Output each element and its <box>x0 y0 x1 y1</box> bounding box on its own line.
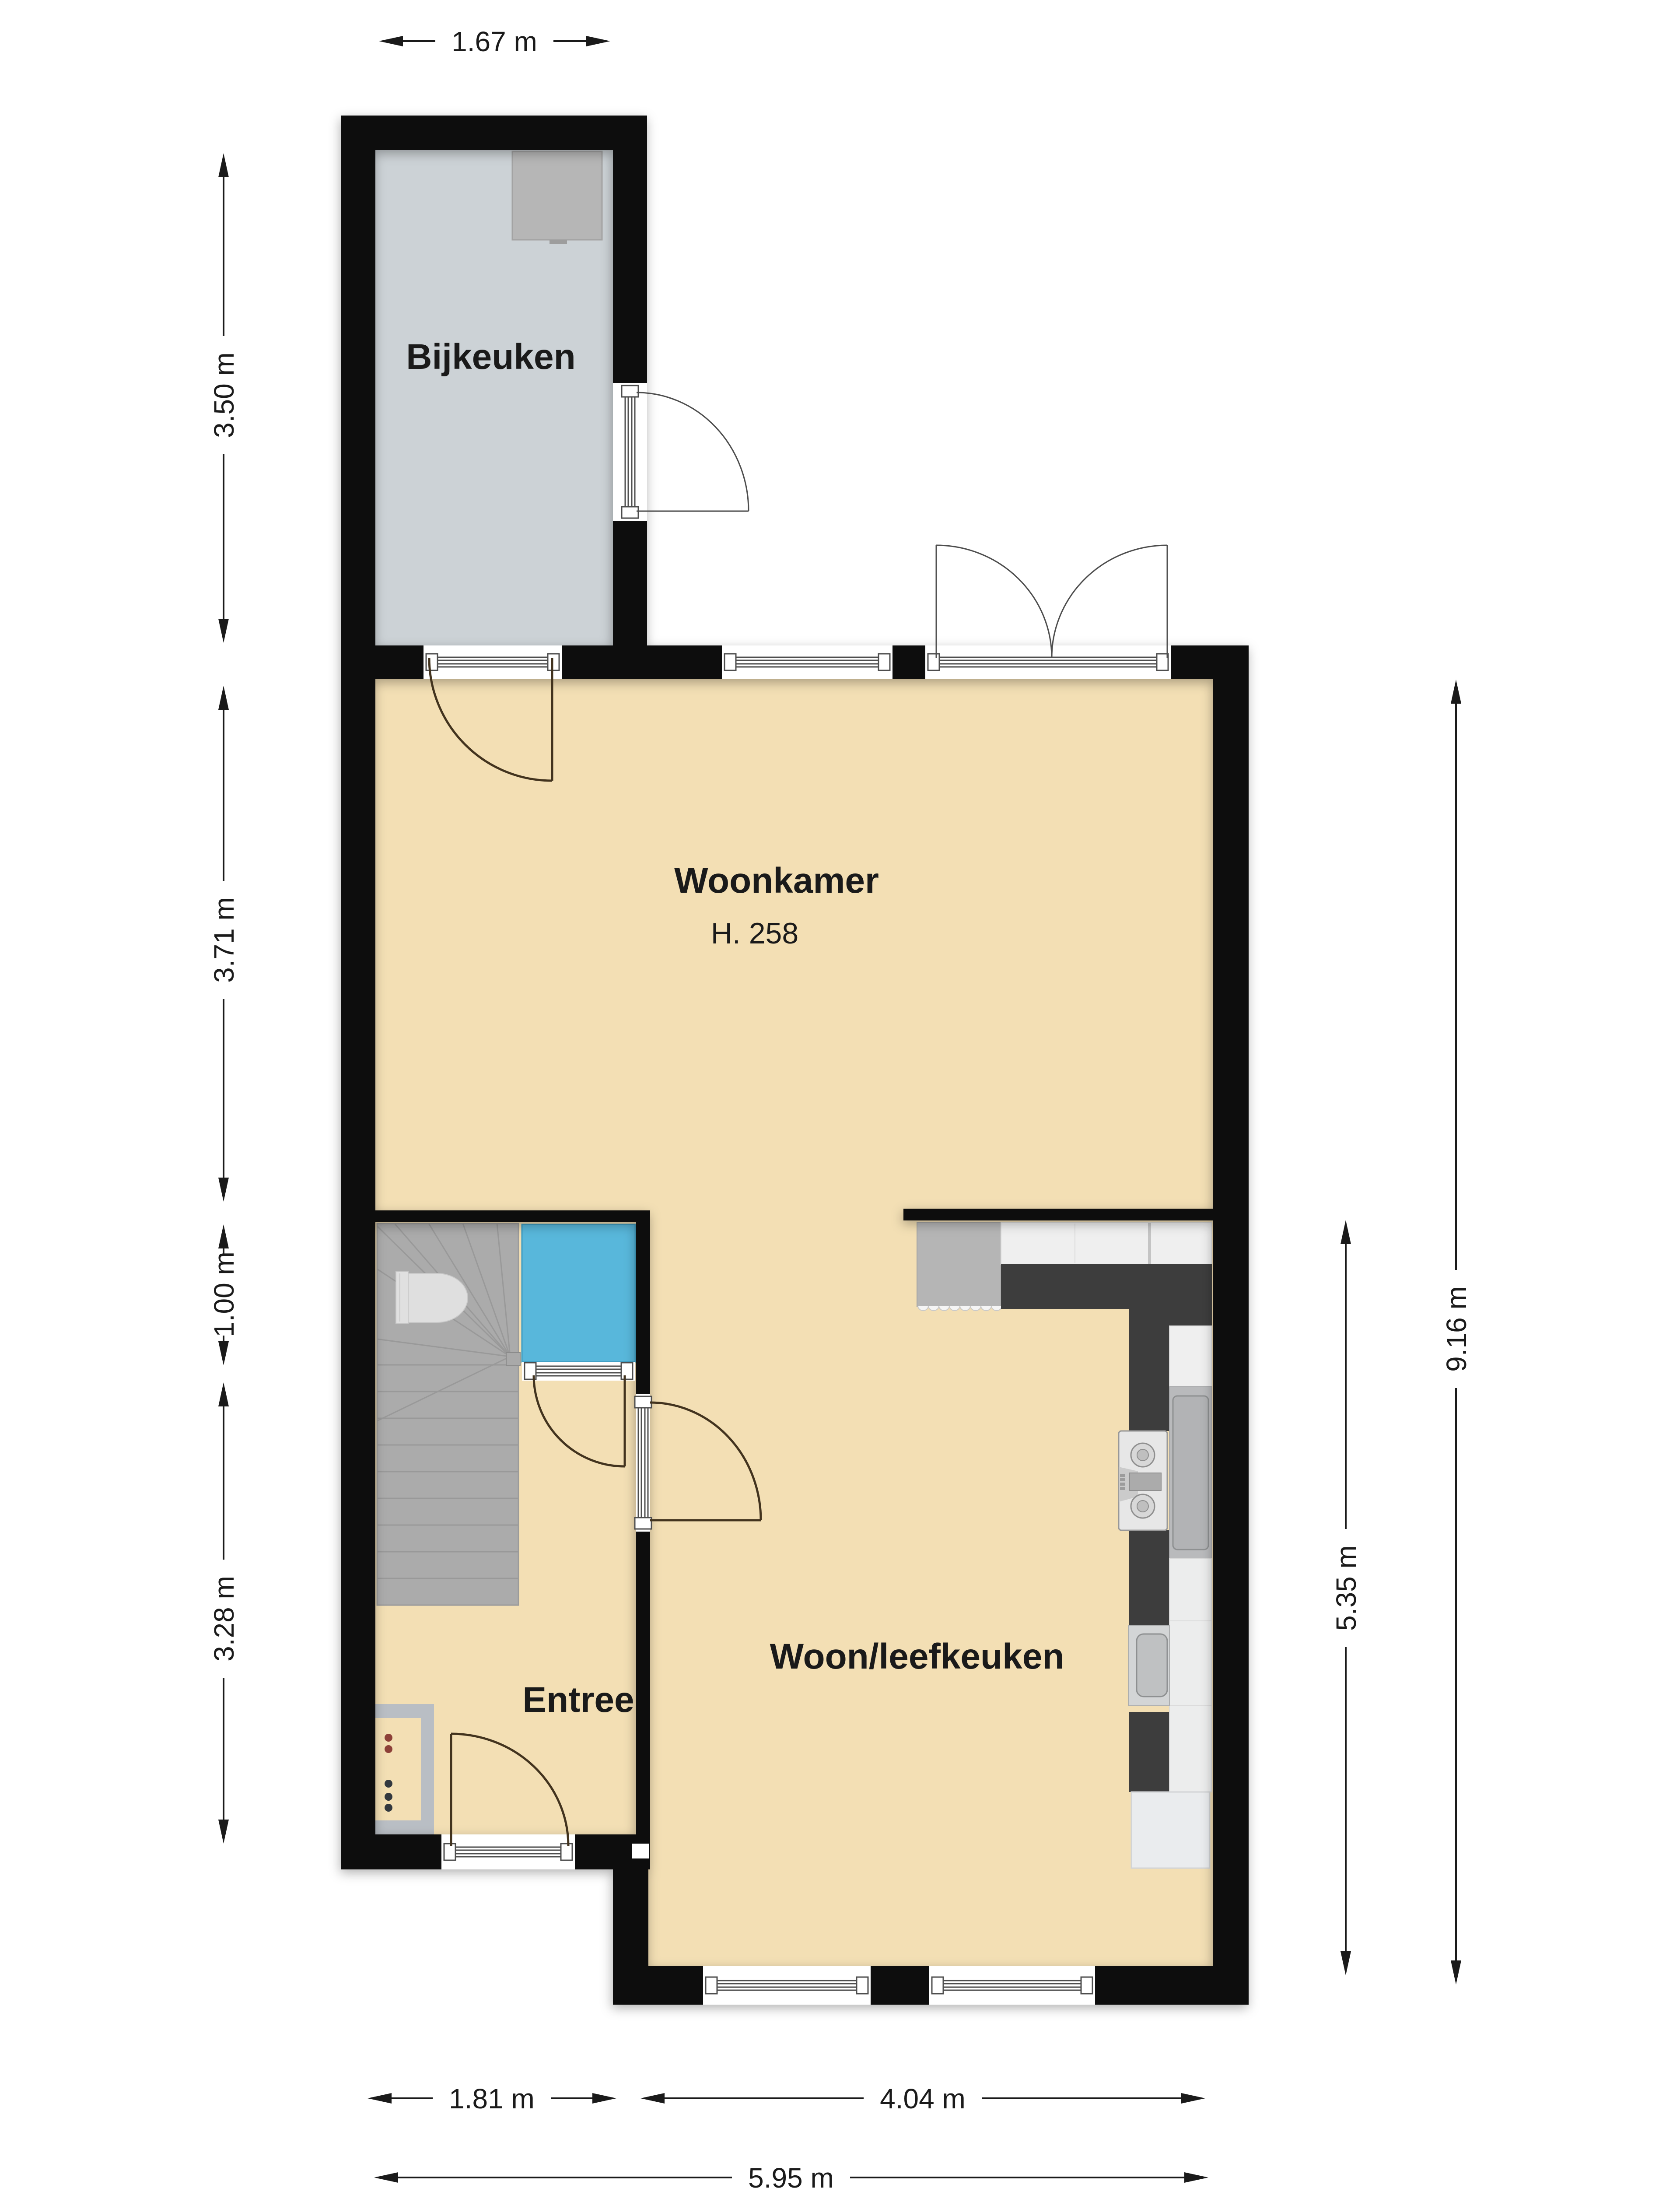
svg-text:Entree: Entree <box>522 1680 634 1720</box>
svg-text:Bijkeuken: Bijkeuken <box>406 337 575 377</box>
svg-text:1.00 m: 1.00 m <box>208 1252 240 1337</box>
svg-text:1.81 m: 1.81 m <box>449 2083 535 2114</box>
svg-text:3.28 m: 3.28 m <box>208 1576 240 1662</box>
svg-text:3.50 m: 3.50 m <box>208 352 240 438</box>
svg-text:5.35 m: 5.35 m <box>1330 1545 1362 1631</box>
svg-text:Woonkamer: Woonkamer <box>674 861 879 901</box>
svg-text:5.95 m: 5.95 m <box>748 2162 834 2188</box>
svg-text:H. 258: H. 258 <box>711 917 798 950</box>
svg-text:Woon/leefkeuken: Woon/leefkeuken <box>770 1637 1064 1676</box>
svg-text:3.71 m: 3.71 m <box>208 897 240 983</box>
svg-text:4.04 m: 4.04 m <box>880 2083 966 2114</box>
svg-text:1.67 m: 1.67 m <box>451 26 537 57</box>
svg-text:9.16 m: 9.16 m <box>1441 1286 1472 1372</box>
